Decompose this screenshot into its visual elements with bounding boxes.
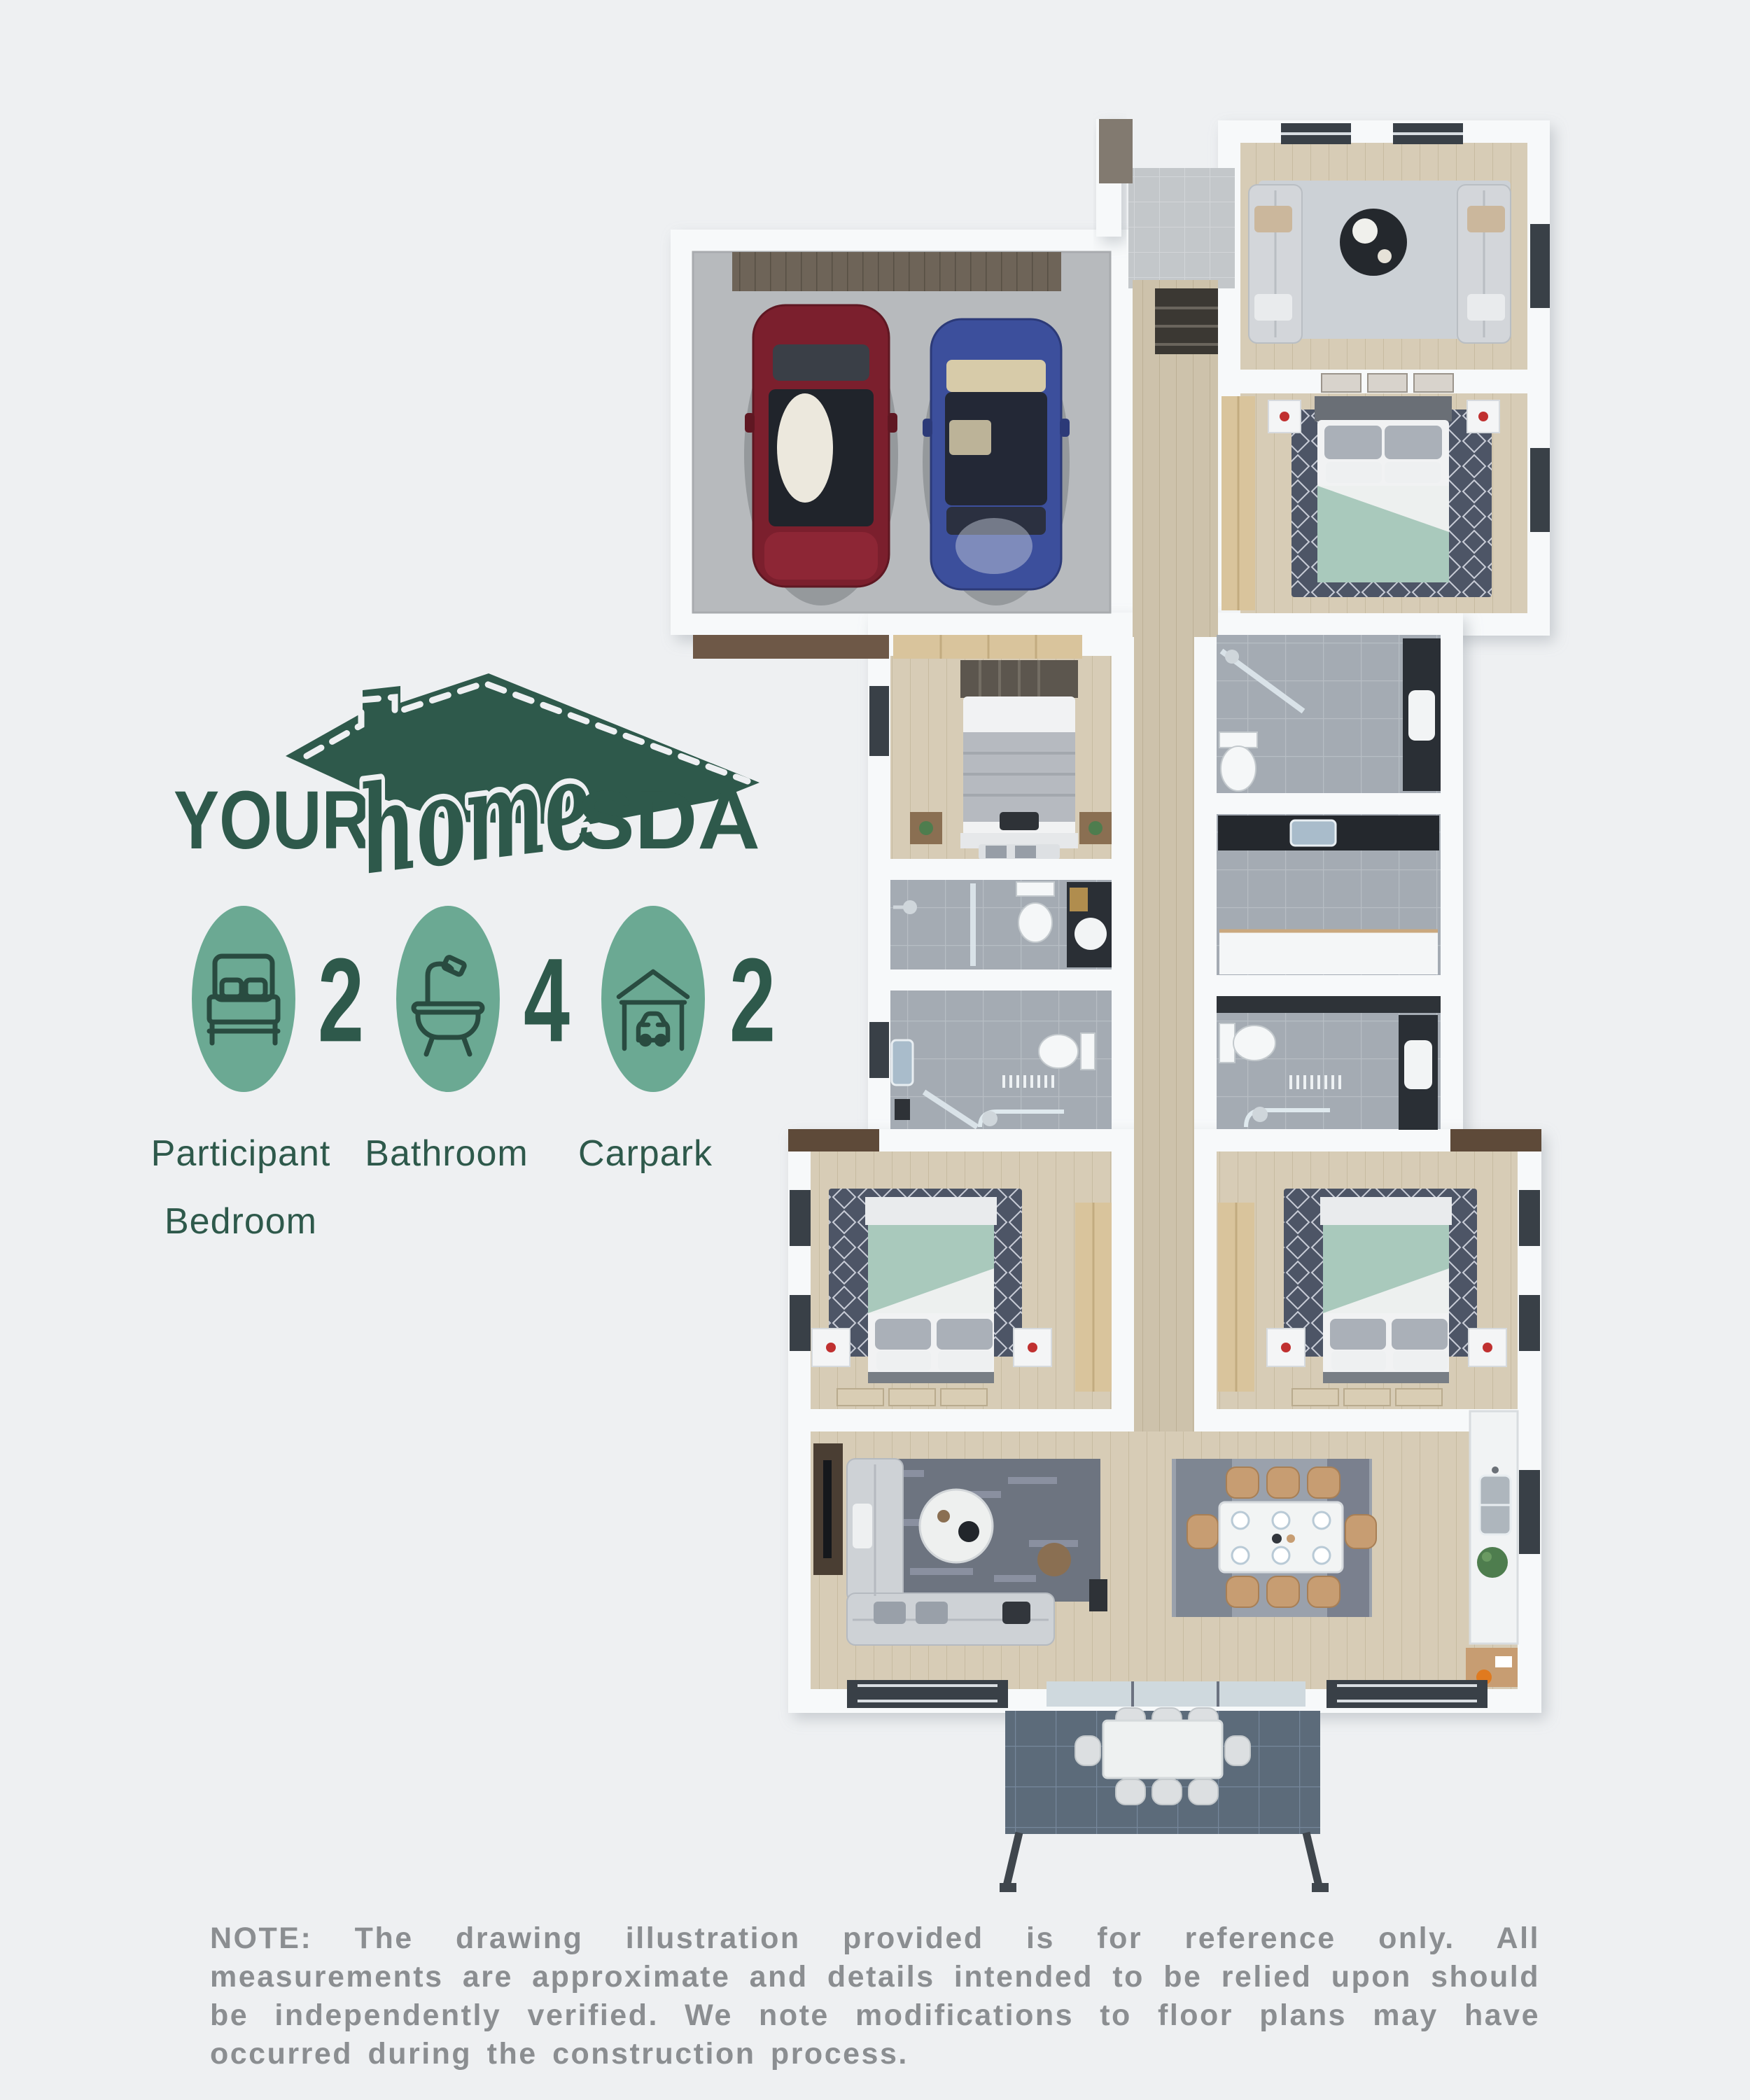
carport-icon [601, 904, 706, 1093]
outdoor-table [1103, 1721, 1222, 1778]
legend-label-bathroom: Bathroom [335, 1120, 559, 1188]
floor-mats [837, 1389, 987, 1406]
wall-frames [1322, 374, 1453, 392]
page: YOUR home SDA 2 [0, 0, 1750, 2100]
red-car [744, 304, 898, 605]
logo-sda: SDA [577, 774, 760, 867]
laundry-sink [1291, 820, 1336, 846]
carpark-count: 2 [722, 941, 783, 1060]
sliding-door [1046, 1681, 1305, 1707]
laundry [1194, 793, 1463, 996]
sofa-right [1457, 185, 1511, 343]
ensuite-bathroom [1217, 635, 1441, 793]
alfresco-patio [1000, 1708, 1329, 1892]
bedroom2-bed [960, 660, 1078, 848]
bathroom-2 [1217, 996, 1441, 1130]
bedroom4-bed [1320, 1197, 1452, 1383]
disclaimer-note: NOTE: The drawing illustration provided … [210, 1919, 1540, 2073]
bedroom-count: 2 [311, 941, 371, 1060]
bathtub-icon [395, 904, 500, 1093]
coffee-table [1340, 209, 1407, 276]
bathroom-count: 4 [517, 941, 577, 1060]
bedroom-1 [1221, 374, 1527, 613]
bedroom-2 [868, 635, 1134, 880]
toilet [1219, 1023, 1275, 1063]
legend-label-participant-bedroom: Participant Bedroom [129, 1120, 353, 1256]
toilet [1016, 882, 1054, 942]
entry-pillar [1099, 119, 1133, 183]
garage-door [732, 252, 1061, 291]
basin [892, 1040, 913, 1085]
open-plan-living [811, 1411, 1518, 1689]
toilet [1039, 1033, 1095, 1070]
side-stool [1037, 1543, 1071, 1576]
dining-area [1172, 1459, 1376, 1617]
logo-your: YOUR [174, 774, 371, 867]
sofa-left [1249, 185, 1302, 343]
toilet [1219, 732, 1257, 791]
speaker [1089, 1579, 1107, 1611]
living-room [1218, 143, 1550, 393]
bathroom-3 [868, 880, 1134, 990]
logo: YOUR home SDA [154, 651, 798, 892]
round-coffee-table [920, 1490, 993, 1562]
bedroom1-bed [1315, 396, 1452, 582]
garage [693, 252, 1110, 659]
bathroom-4 [890, 990, 1112, 1129]
blue-car [923, 318, 1070, 605]
bed-icon [191, 904, 296, 1093]
tv [823, 1460, 832, 1558]
floor-mats [1292, 1389, 1442, 1406]
bedroom-4 [1217, 1151, 1518, 1409]
shade-posts [1007, 1833, 1319, 1886]
bedroom3-bed [865, 1197, 997, 1383]
logo-home: home [353, 733, 599, 892]
bedroom-3 [811, 1151, 1112, 1409]
legend-label-carpark: Carpark [533, 1120, 757, 1188]
plant [1477, 1547, 1508, 1578]
laundry-bench [1219, 931, 1438, 974]
